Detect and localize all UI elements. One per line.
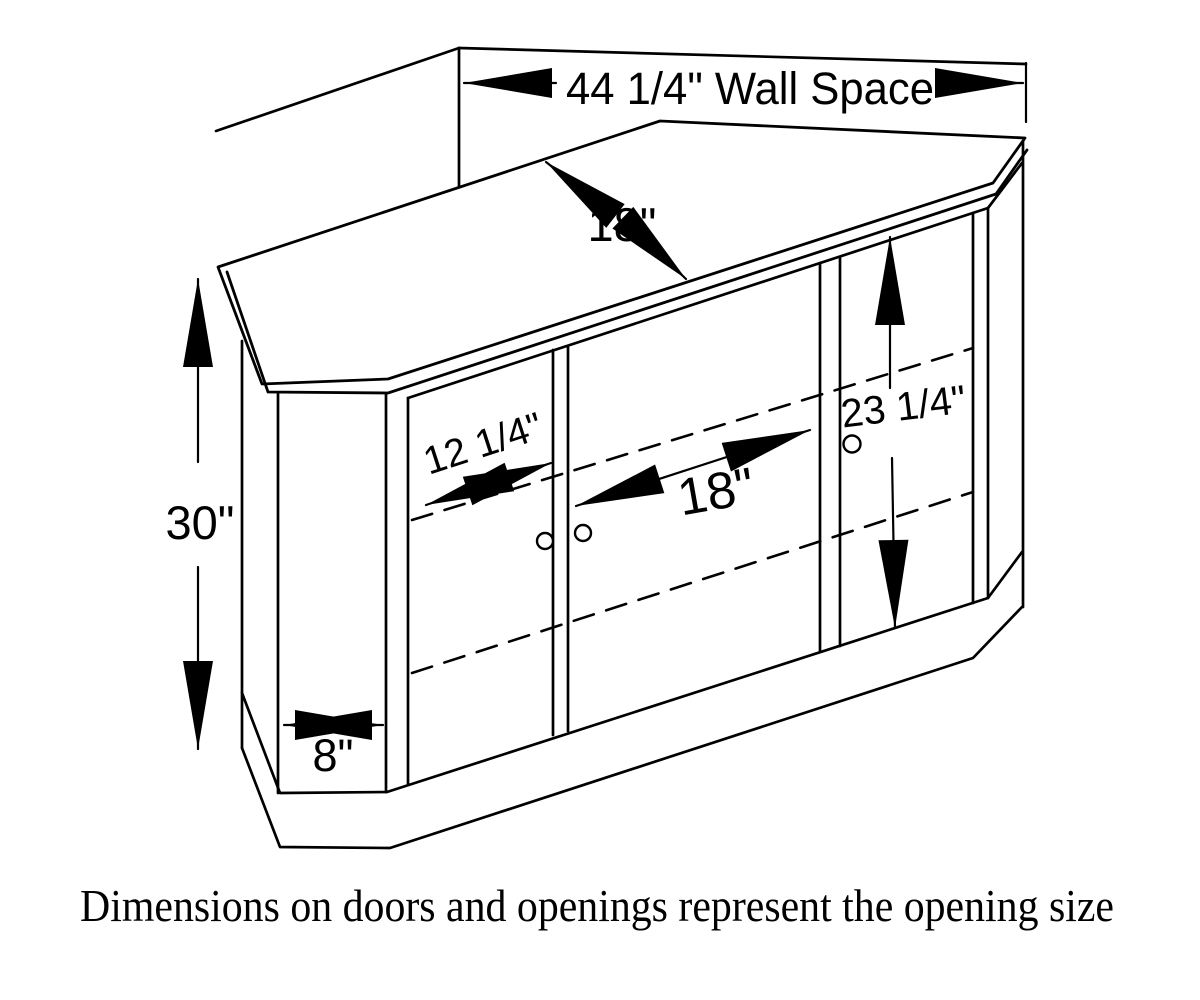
dim-center-opening: 18" [576,430,810,527]
dim-left-door-opening: 12 1/4" [418,405,551,505]
left-door-knob [537,533,553,549]
wall-space-label: 44 1/4" Wall Space [566,63,934,114]
dim-wall-space: 44 1/4" Wall Space [464,63,1026,122]
wall-left-top-edge [216,48,459,131]
right-door-knob [844,436,861,453]
cabinet-top [218,121,1027,393]
top-depth-label: 18" [588,198,657,251]
center-door-knob [575,525,591,541]
body-bottom-edge [242,552,1022,793]
dim-overall-height: 30" [166,279,235,749]
center-opening-label: 18" [673,457,758,527]
top-surface [218,121,1025,384]
plinth-bottom-edge [242,607,1022,848]
dim-opening-height: 23 1/4" [838,237,968,628]
diagram-page: 44 1/4" Wall Space 18" 30" 12 1/4" [0,0,1200,1000]
opening-height-label: 23 1/4" [838,378,968,437]
overall-height-label: 30" [166,496,235,549]
side-panel-label: 8" [312,730,353,781]
corner-cabinet-diagram: 44 1/4" Wall Space 18" 30" 12 1/4" [0,0,1200,1000]
caption: Dimensions on doors and openings represe… [80,880,1114,931]
wall-right-top-edge [459,48,1026,64]
dim-arrow-down [892,458,895,628]
dim-side-panel: 8" [284,725,383,781]
